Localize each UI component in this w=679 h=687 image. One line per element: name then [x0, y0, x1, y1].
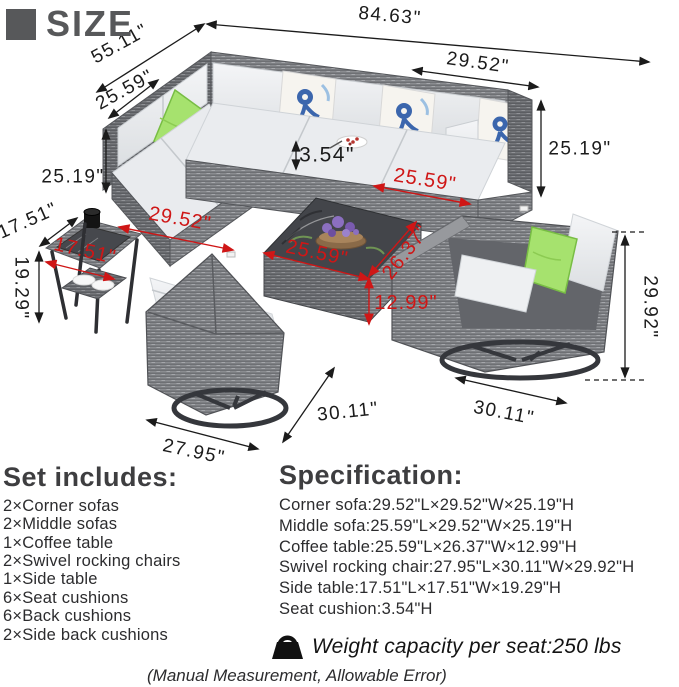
- measurement-footnote: (Manual Measurement, Allowable Error): [147, 666, 447, 686]
- side-table: [46, 209, 141, 333]
- list-item: Coffee table:25.59"L×26.37"W×12.99"H: [279, 537, 634, 558]
- specification-section: Specification: Corner sofa:29.52"L×29.52…: [279, 461, 634, 620]
- set-includes-section: Set includes: 2×Corner sofas 2×Middle so…: [3, 463, 180, 644]
- list-item: Middle sofa:25.59"L×29.52"W×25.19"H: [279, 516, 634, 537]
- list-item: Seat cushion:3.54"H: [279, 599, 634, 620]
- size-diagram-page: SIZE: [0, 0, 679, 687]
- specification-title: Specification:: [279, 461, 634, 491]
- list-item: Swivel rocking chair:27.95"L×30.11"W×29.…: [279, 557, 634, 578]
- page-header: SIZE: [6, 6, 134, 42]
- list-item: 6×Back cushions: [3, 607, 180, 625]
- weight-capacity-row: Weight capacity per seat:250 lbs: [271, 630, 622, 661]
- set-includes-title: Set includes:: [3, 463, 180, 493]
- title-square-icon: [6, 9, 36, 40]
- weight-capacity-text: Weight capacity per seat:250 lbs: [312, 635, 622, 661]
- list-item: 2×Swivel rocking chairs: [3, 552, 180, 570]
- dim-sofa-height-left-label: 25.19": [41, 168, 104, 187]
- list-item: 1×Coffee table: [3, 534, 180, 552]
- set-includes-list: 2×Corner sofas 2×Middle sofas 1×Coffee t…: [3, 497, 180, 644]
- dim-overall-width-label: 84.63": [358, 4, 423, 28]
- dim-side-table-height-label: 19.29": [12, 256, 31, 319]
- page-title: SIZE: [46, 6, 134, 42]
- list-item: 2×Corner sofas: [3, 497, 180, 515]
- list-item: 1×Side table: [3, 570, 180, 588]
- weight-icon: [271, 630, 304, 661]
- specification-list: Corner sofa:29.52"L×29.52"W×25.19"H Midd…: [279, 495, 634, 620]
- furniture-illustration: [0, 0, 679, 460]
- list-item: 6×Seat cushions: [3, 589, 180, 607]
- list-item: 2×Middle sofas: [3, 515, 180, 533]
- list-item: 2×Side back cushions: [3, 626, 180, 644]
- dim-coffee-table-height-label: 12.99": [374, 293, 437, 313]
- dim-sofa-height-right-label: 25.19": [548, 140, 611, 159]
- dim-chair-height-label: 29.92": [641, 275, 660, 338]
- dim-cushion-height-label: 3.54": [299, 145, 355, 166]
- list-item: Corner sofa:29.52"L×29.52"W×25.19"H: [279, 495, 634, 516]
- list-item: Side table:17.51"L×17.51"W×19.29"H: [279, 578, 634, 599]
